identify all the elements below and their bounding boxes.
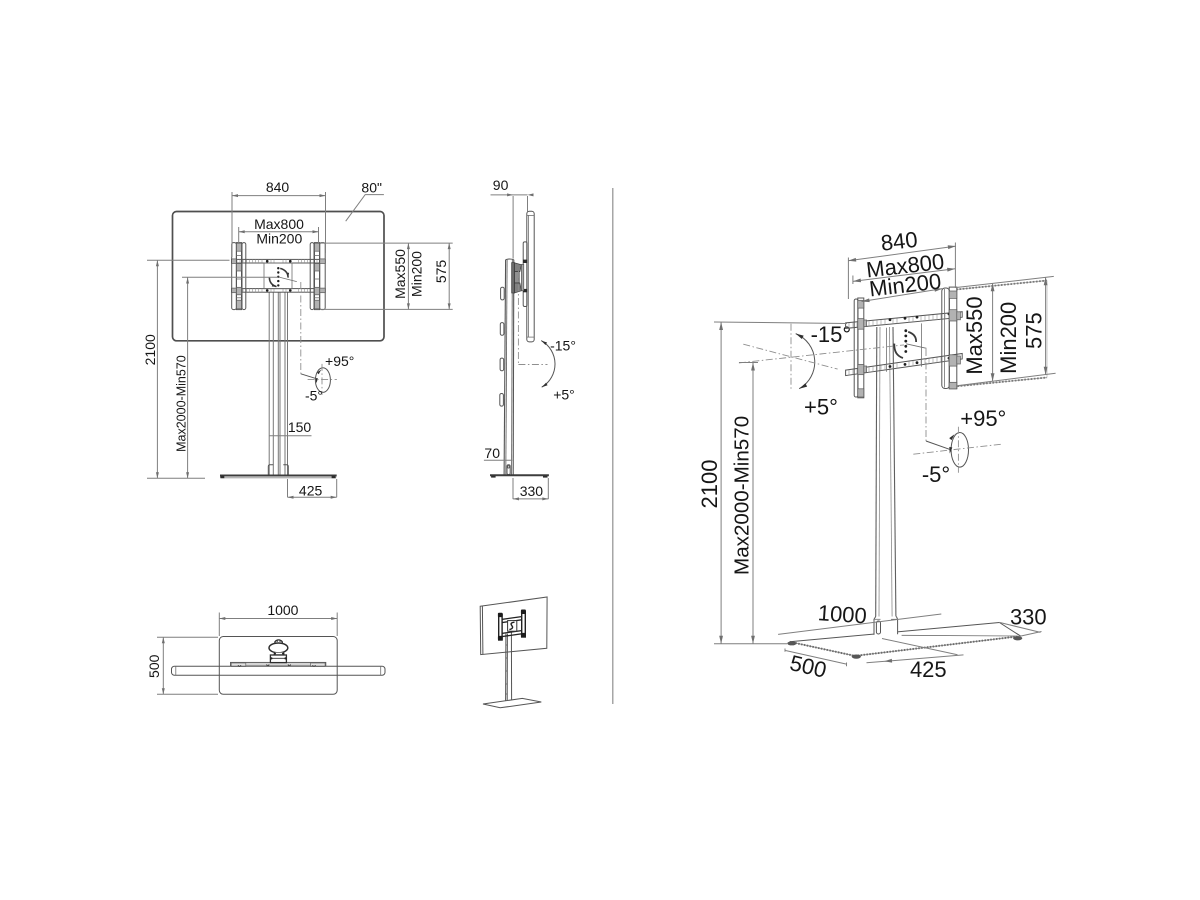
svg-text:-5°: -5°: [922, 462, 950, 487]
svg-text:+95°: +95°: [325, 353, 354, 369]
svg-text:Max800: Max800: [254, 216, 304, 232]
svg-text:+5°: +5°: [553, 387, 575, 403]
svg-text:575: 575: [433, 260, 449, 284]
svg-text:70: 70: [484, 445, 500, 461]
svg-text:Max550: Max550: [392, 249, 408, 299]
svg-text:+5°: +5°: [804, 395, 838, 420]
svg-text:Min200: Min200: [996, 302, 1021, 374]
svg-text:Max2000-Min570: Max2000-Min570: [175, 355, 189, 452]
svg-text:1000: 1000: [817, 600, 868, 628]
svg-text:2100: 2100: [697, 460, 722, 509]
svg-text:1000: 1000: [267, 602, 298, 618]
svg-text:80": 80": [361, 180, 382, 196]
svg-text:150: 150: [288, 419, 312, 435]
svg-text:-5°: -5°: [305, 387, 323, 403]
svg-text:+95°: +95°: [960, 406, 1006, 431]
svg-text:Min200: Min200: [409, 251, 425, 297]
svg-text:330: 330: [1010, 604, 1047, 629]
svg-text:575: 575: [1022, 312, 1047, 349]
svg-text:-15°: -15°: [550, 338, 576, 354]
svg-text:425: 425: [910, 657, 947, 682]
svg-text:425: 425: [299, 483, 323, 499]
svg-text:Max550: Max550: [962, 296, 987, 374]
svg-text:500: 500: [146, 654, 162, 678]
svg-text:Max2000-Min570: Max2000-Min570: [731, 416, 754, 575]
svg-text:2100: 2100: [142, 334, 158, 365]
svg-text:Min200: Min200: [256, 231, 302, 247]
svg-text:90: 90: [493, 177, 509, 193]
svg-text:330: 330: [520, 483, 544, 499]
svg-text:840: 840: [266, 179, 290, 195]
